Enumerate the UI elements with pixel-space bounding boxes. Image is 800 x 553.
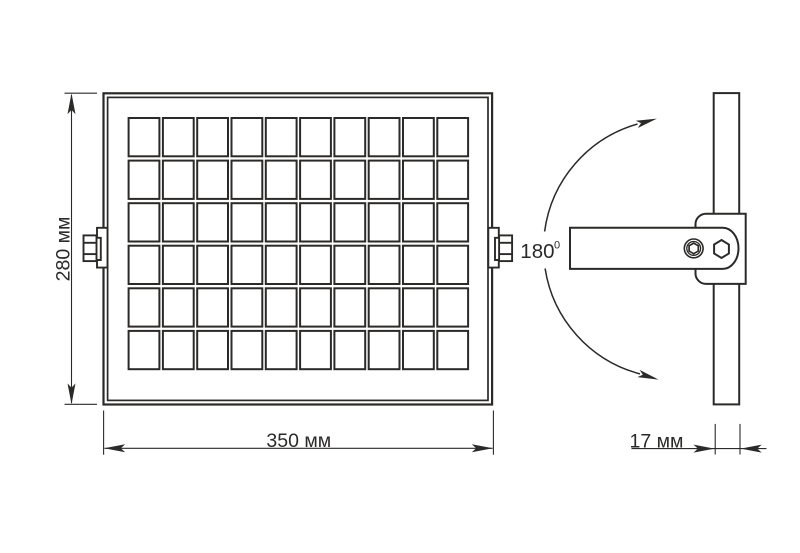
svg-text:1800: 1800 <box>520 239 560 263</box>
svg-text:17 мм: 17 мм <box>630 430 684 452</box>
svg-text:350 мм: 350 мм <box>266 430 331 452</box>
svg-text:280 мм: 280 мм <box>53 217 75 282</box>
